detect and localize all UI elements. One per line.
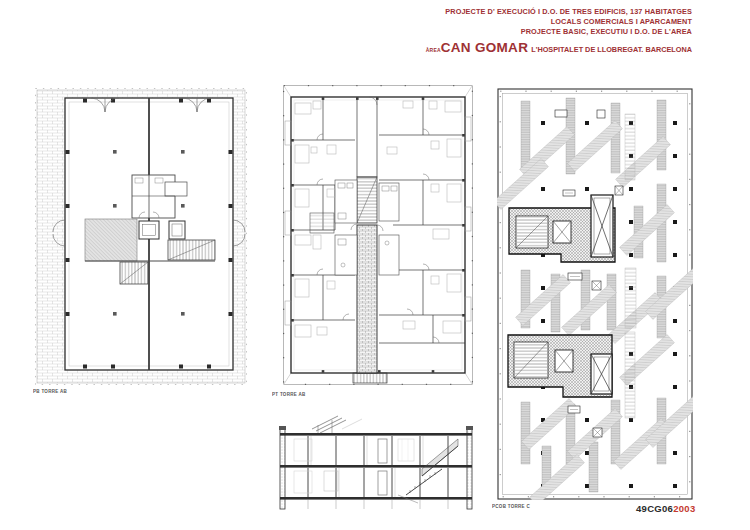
title-header: PROJECTE D' EXECUCIÓ I D.O. DE TRES EDIF… (426, 7, 692, 55)
sheet-code: 49CG06 (636, 503, 673, 514)
plan-label-roof: PCOB TORRE C (492, 504, 530, 509)
ground-floor-plan (35, 88, 247, 390)
plan-label-ground: PB TORRE AB (33, 389, 67, 394)
project-name-row: ÀREA CAN GOMAR L'HOSPITALET DE LLOBREGAT… (426, 40, 692, 55)
roof-solar-panel (312, 416, 362, 433)
stair (168, 240, 215, 260)
sheet-number: 49CG062003 (636, 503, 696, 514)
drawing-sheet: PROJECTE D' EXECUCIÓ I D.O. DE TRES EDIF… (0, 0, 750, 530)
plan-label-typical: PT TORRE AB (272, 392, 306, 397)
floor-slabs (280, 433, 472, 500)
project-name: CAN GOMAR (441, 40, 528, 55)
stair (120, 262, 148, 284)
exit-stair (353, 373, 387, 383)
stair (310, 213, 334, 233)
roof-plan (497, 88, 693, 500)
project-location: L'HOSPITALET DE LLOBREGAT. BARCELONA (531, 45, 692, 54)
building-section (278, 413, 478, 510)
door (378, 471, 387, 495)
elevator (169, 221, 185, 239)
elevator (139, 221, 159, 239)
typical-floor-plan (283, 85, 473, 385)
door (378, 439, 387, 463)
project-title-line-2: LOCALS COMERCIALS I APARCAMENT (426, 17, 692, 27)
project-title-line-3: PROJECTE BASIC, EXECUTIU I D.O. DE L'ARE… (426, 27, 692, 37)
bathroom (379, 235, 399, 275)
area-prefix: ÀREA (426, 47, 441, 53)
section-stair (398, 439, 458, 503)
project-title-line-1: PROJECTE D' EXECUCIÓ I D.O. DE TRES EDIF… (426, 7, 692, 17)
sheet-year: 2003 (673, 503, 695, 514)
elevator-shaft (357, 225, 377, 373)
access-ramp (85, 219, 137, 261)
lower-level-stubs (308, 500, 448, 509)
